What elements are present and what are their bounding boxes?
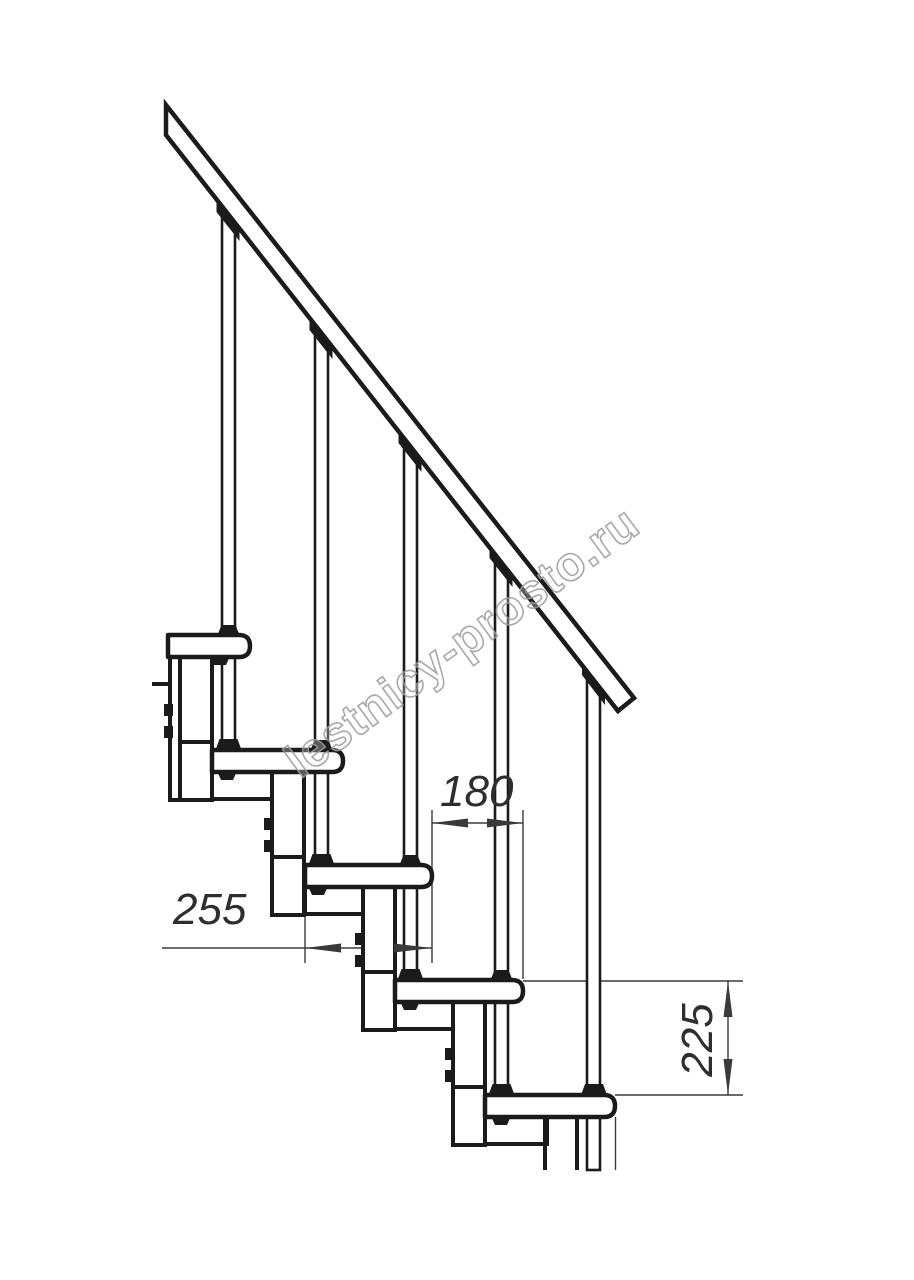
baluster-rod-2	[315, 324, 328, 863]
module-1-tab-a	[164, 704, 173, 716]
module-4-tab-b	[445, 1070, 454, 1082]
tread-3	[305, 865, 432, 887]
baluster-foot-2	[309, 854, 335, 865]
module-3-tab-a	[355, 933, 364, 945]
baluster-foot-1	[216, 739, 242, 750]
module-2-tab-b	[264, 840, 273, 852]
module-1-tab-b	[164, 726, 173, 738]
module-3-tab-b	[355, 955, 364, 967]
tread-5	[485, 1095, 615, 1117]
dim-255-arrow-left	[305, 944, 341, 953]
module-4	[453, 1000, 485, 1145]
dim-label-tread-depth: 255	[172, 885, 247, 934]
module-3	[363, 885, 395, 1030]
technical-drawing: 255 180 225 lestnicy-prosto.ru	[0, 0, 914, 1280]
baluster-rod-1	[222, 206, 235, 748]
module-1	[180, 655, 212, 800]
baluster-foot-3	[398, 969, 424, 980]
module-2-tab-a	[264, 818, 273, 830]
dim-180-arrow-left	[432, 819, 468, 828]
module-4-tab-a	[445, 1048, 454, 1060]
tread-1	[168, 635, 250, 657]
dim-225-arrow-up	[724, 981, 733, 1017]
dim-label-rise: 225	[673, 1003, 722, 1078]
drawing-page: 255 180 225 lestnicy-prosto.ru	[0, 0, 914, 1280]
tread-4	[395, 980, 523, 1002]
dim-225-arrow-down	[724, 1059, 733, 1095]
baluster-foot-4	[489, 1084, 515, 1095]
tread-collar-5	[581, 1084, 607, 1095]
module-2	[272, 770, 304, 915]
dim-label-going: 180	[440, 767, 514, 816]
